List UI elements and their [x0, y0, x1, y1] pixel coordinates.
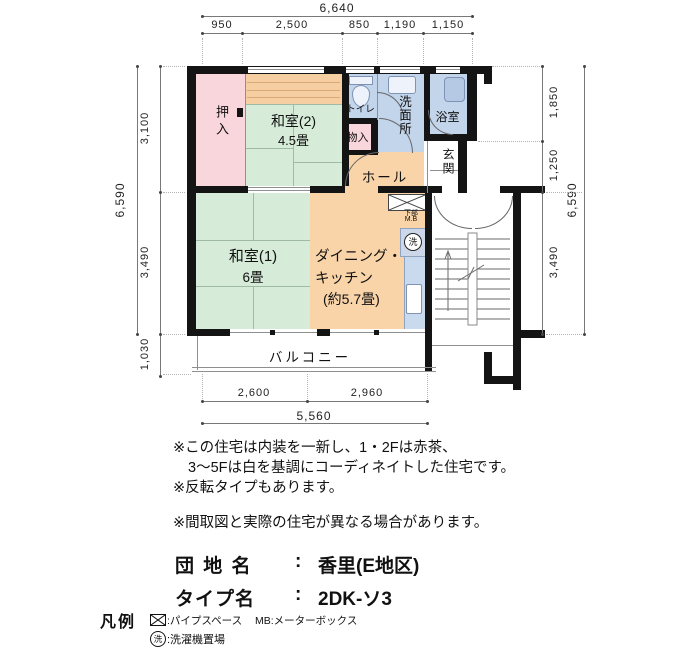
window-line [248, 69, 324, 70]
dim-leader [163, 192, 185, 193]
dim-top-seg: 1,190 [380, 19, 420, 31]
dim-tick [583, 65, 586, 68]
type-name-label: タイプ名 [175, 584, 255, 611]
dim-right-seg: 3,490 [548, 232, 560, 292]
dim-leader [427, 374, 428, 399]
dim-tick [583, 333, 586, 336]
label-oshiire: 押入 [212, 105, 231, 139]
dim-leader [472, 38, 473, 64]
toilet-tank [349, 76, 373, 85]
type-name-colon: : [295, 584, 301, 606]
note-line2: 3〜5Fは白を基調にコーディネイトした住宅です。 [188, 456, 515, 477]
label-bath: 浴室 [428, 108, 467, 125]
wood-strip-line [247, 82, 340, 83]
dim-tick [426, 400, 429, 403]
dim-tick [159, 375, 162, 378]
wall-segment [432, 186, 442, 193]
window [248, 67, 324, 73]
note-line4: ※間取図と実際の住宅が異なる場合があります。 [173, 511, 488, 532]
dim-tick [541, 65, 544, 68]
wall-segment [310, 186, 345, 193]
label-storage: 物入 [342, 129, 373, 145]
legend-washer-text: :洗濯機置場 [167, 631, 225, 647]
dim-tick [201, 400, 204, 403]
wood-strip-line [247, 90, 340, 91]
label-washitsu2: 和室(2) [245, 111, 342, 131]
window [436, 67, 460, 73]
dim-tick [376, 32, 379, 35]
dim-top-seg: 950 [202, 19, 242, 31]
legend-mb-text: MB:メーターボックス [255, 613, 357, 628]
label-dk-line3: (約5.7畳) [323, 289, 380, 309]
dim-tick [471, 32, 474, 35]
dim-bottom-seg: 2,960 [327, 387, 407, 399]
legend-ps-text: :パイプスペース [167, 613, 242, 628]
mb-label-line2: M.B [396, 216, 426, 223]
dim-line [137, 66, 138, 334]
dim-line [160, 66, 161, 376]
type-name-value: 2DK-ソ3 [318, 584, 392, 611]
legend-ps-symbol-icon [150, 614, 166, 626]
tatami-line [293, 162, 342, 163]
wood-strip [245, 74, 342, 104]
wall-segment [187, 66, 196, 336]
tatami-line [196, 240, 310, 241]
legend-washer-symbol-icon: 洗 [150, 631, 166, 647]
dim-leader [202, 38, 203, 64]
dim-right-seg: 1,850 [548, 72, 560, 132]
wall-segment [317, 329, 330, 336]
wall-segment [187, 186, 248, 193]
dim-tick [426, 422, 429, 425]
window-stile [374, 330, 379, 335]
wall-segment [378, 186, 432, 193]
dim-leader [478, 141, 540, 142]
dim-tick [306, 400, 309, 403]
window-line [436, 69, 460, 70]
dim-leader [377, 38, 378, 64]
dim-top-seg: 2,500 [252, 19, 332, 31]
label-washitsu1: 和室(1) [196, 245, 310, 266]
balcony-left-line [197, 336, 198, 370]
dim-line [202, 423, 427, 424]
danchi-name-value: 香里(E地区) [318, 551, 419, 578]
dim-bottom-total: 5,560 [274, 409, 354, 423]
dim-leader [163, 66, 185, 67]
note-line3: ※反転タイプもあります。 [173, 476, 343, 497]
dim-leader [163, 374, 191, 375]
window-stile [270, 330, 275, 335]
dim-leader [163, 334, 185, 335]
balcony-rail-line [192, 371, 436, 372]
dim-leader [342, 38, 343, 64]
washer-symbol-icon: 洗 [404, 233, 422, 251]
legend-title: 凡例 [100, 608, 136, 632]
dim-leader [492, 66, 540, 67]
dim-leader [423, 38, 424, 64]
dim-line [584, 66, 585, 334]
wall-segment [513, 193, 521, 390]
dim-bottom-seg: 2,600 [214, 387, 294, 399]
label-balcony: バルコニー [250, 346, 370, 366]
dim-line [202, 16, 472, 17]
entrance-step-line [427, 141, 428, 193]
dim-line [202, 401, 427, 402]
sliding-door-line [248, 190, 310, 191]
washroom-sink [388, 76, 416, 94]
dim-tick [201, 15, 204, 18]
dim-tick [201, 32, 204, 35]
note-line1: ※この住宅は内装を一新し、1・2Fは赤茶、 [173, 436, 457, 457]
label-entrance: 玄関 [440, 148, 457, 176]
dim-top-total: 6,640 [277, 1, 397, 15]
danchi-name-label: 団 地 名 [175, 551, 253, 578]
danchi-name-colon: : [295, 551, 301, 573]
wall-segment [484, 74, 492, 84]
dim-left-seg: 1,030 [139, 324, 151, 384]
balcony-rail-line [192, 367, 436, 368]
dim-leader [242, 38, 243, 64]
sliding-door-line [248, 187, 310, 188]
dim-tick [241, 32, 244, 35]
dim-tick [541, 191, 544, 194]
bathtub [444, 77, 465, 102]
wall-pillar [237, 108, 243, 117]
window-line [346, 69, 374, 70]
stair-landing-line [432, 345, 513, 346]
dim-top-seg: 850 [340, 19, 379, 31]
label-washitsu2-size: 4.5畳 [245, 130, 342, 149]
wood-strip-line [247, 97, 340, 98]
dim-tick [541, 140, 544, 143]
dim-tick [159, 333, 162, 336]
wall-segment [458, 141, 467, 193]
tatami-line [253, 286, 254, 329]
window [346, 67, 374, 73]
dim-leader [546, 334, 582, 335]
dim-leader [546, 192, 582, 193]
wall-segment [500, 186, 521, 193]
window [380, 67, 420, 73]
dim-tick [159, 191, 162, 194]
dim-leader [202, 374, 203, 399]
dim-tick [201, 422, 204, 425]
dim-tick [136, 65, 139, 68]
dim-tick [541, 333, 544, 336]
dim-tick [159, 65, 162, 68]
floorplan-sheet: 洗 下部 M.B [0, 0, 700, 650]
dim-left-seg: 3,490 [139, 232, 151, 292]
dim-left-total: 6,590 [113, 170, 127, 230]
wall-segment [187, 329, 230, 336]
wall-segment [425, 193, 432, 372]
dim-line [542, 66, 543, 334]
tatami-line [245, 104, 342, 105]
window-line [380, 69, 420, 70]
dim-tick [471, 15, 474, 18]
tatami-line [253, 193, 254, 240]
label-toilet: トイレ [344, 101, 377, 115]
dim-right-total: 6,590 [565, 170, 579, 230]
wall-segment [467, 66, 477, 141]
dim-top-seg: 1,150 [428, 19, 468, 31]
label-dk-line2: キッチン [315, 267, 373, 288]
label-hall: ホール [350, 166, 420, 186]
dim-tick [136, 333, 139, 336]
dim-tick [341, 32, 344, 35]
wall-segment [484, 376, 521, 384]
kitchen-sink [406, 284, 422, 314]
dim-tick [422, 32, 425, 35]
staircase [432, 193, 513, 345]
label-washroom: 洗面所 [395, 95, 414, 136]
dim-right-seg: 1,250 [548, 135, 560, 195]
label-dk-line1: ダイニング・ [315, 245, 402, 266]
dim-leader [307, 374, 308, 399]
label-washitsu1-size: 6畳 [196, 266, 310, 286]
dim-left-seg: 3,100 [139, 98, 151, 158]
